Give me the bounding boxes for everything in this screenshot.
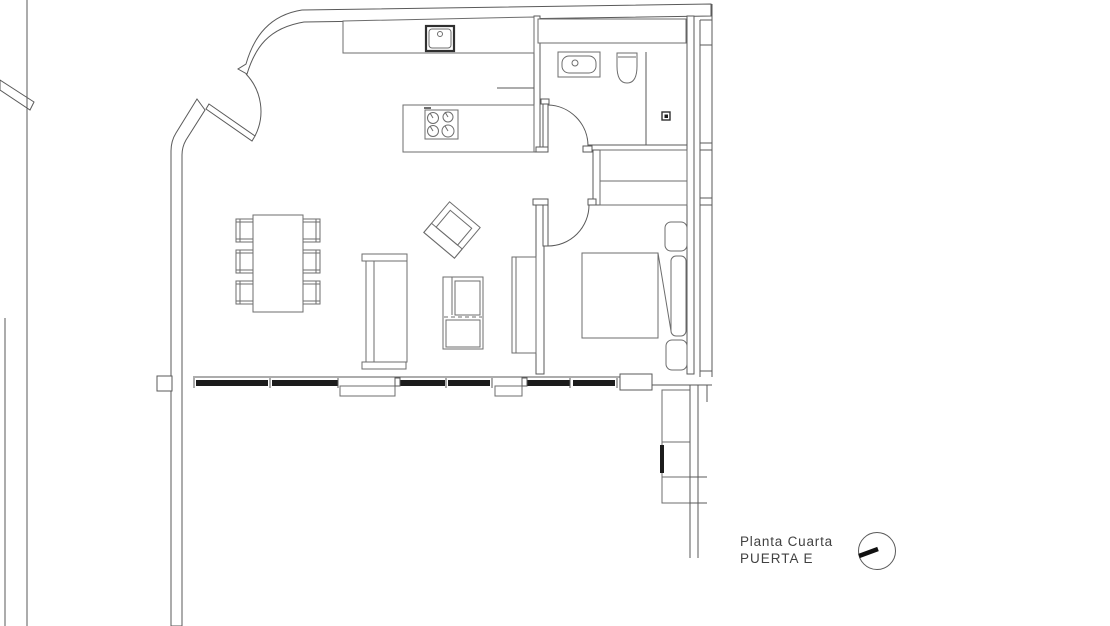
bed-pillow (671, 256, 686, 336)
right-party-wall (700, 4, 712, 377)
floor-plan-drawing (0, 0, 1110, 626)
bath-door-jamb-top (541, 99, 549, 104)
bathroom-door-leaf (543, 104, 548, 147)
window-glazing (196, 380, 268, 386)
bed-sheet-fold (658, 253, 671, 331)
topleft-boundary-stub (0, 80, 34, 110)
sofa (362, 254, 407, 369)
dining-chair (303, 250, 320, 273)
utility-unit (660, 445, 664, 473)
bathroom-door-swing-arc (548, 105, 588, 146)
shower-drain-icon (662, 112, 670, 120)
terrace-door-threshold (340, 386, 395, 396)
bedroom-door-swing-arc (548, 205, 589, 246)
plan-title-floor: Planta Cuarta (740, 534, 833, 549)
window-band (193, 377, 620, 396)
kitchen (343, 17, 534, 152)
floor-plan: Planta Cuarta PUERTA E (0, 0, 1110, 626)
window-glazing (527, 380, 570, 386)
bathroom-door (543, 104, 588, 147)
bathroom (538, 19, 686, 145)
bed (582, 222, 687, 370)
armchair (424, 202, 480, 258)
entrance-door (206, 74, 261, 141)
bedroom-door-leaf (543, 205, 548, 246)
nightstand-bottom (666, 340, 687, 370)
wardrobe (600, 150, 687, 205)
bedroom-top-jamb-left (533, 199, 548, 205)
dining-set (236, 215, 320, 312)
nightstand-top (665, 222, 687, 251)
entrance-door-leaf (206, 104, 255, 141)
right-outer-wall (687, 16, 694, 374)
side-table (443, 277, 483, 349)
terrace-right-structure (620, 374, 712, 558)
band-end-wall (620, 374, 652, 390)
bookshelf (512, 257, 536, 353)
left-wall-stub (157, 376, 172, 391)
plan-title-door: PUERTA E (740, 551, 814, 566)
terrace-door-threshold (495, 386, 522, 396)
window-glazing (400, 380, 445, 386)
orientation-dial-icon (859, 533, 896, 570)
dining-table (253, 215, 303, 312)
dining-chair (303, 281, 320, 304)
bath-bottom-wall (588, 145, 687, 150)
dining-chair (236, 219, 253, 242)
window-glazing (448, 380, 490, 386)
kitchen-island (403, 105, 534, 152)
window-glazing (272, 380, 338, 386)
bath-door-jamb-bottom (536, 147, 548, 152)
dining-chair (236, 250, 253, 273)
window-jamb (522, 378, 527, 386)
bed-mattress (582, 253, 658, 338)
hall-wardrobe-divider (593, 150, 600, 205)
bathroom-top-cabinet (538, 19, 686, 43)
bathroom-vanity (558, 52, 600, 77)
bath-door-jamb-right (583, 146, 592, 152)
window-jamb (395, 378, 400, 386)
toilet (617, 53, 637, 83)
bedroom-top-jamb-right (588, 199, 596, 205)
entrance-door-swing-arc (246, 74, 261, 136)
bedroom-door (543, 205, 589, 246)
dining-chair (236, 281, 253, 304)
dining-chair (303, 219, 320, 242)
window-glazing (573, 380, 615, 386)
left-wall (171, 99, 205, 626)
